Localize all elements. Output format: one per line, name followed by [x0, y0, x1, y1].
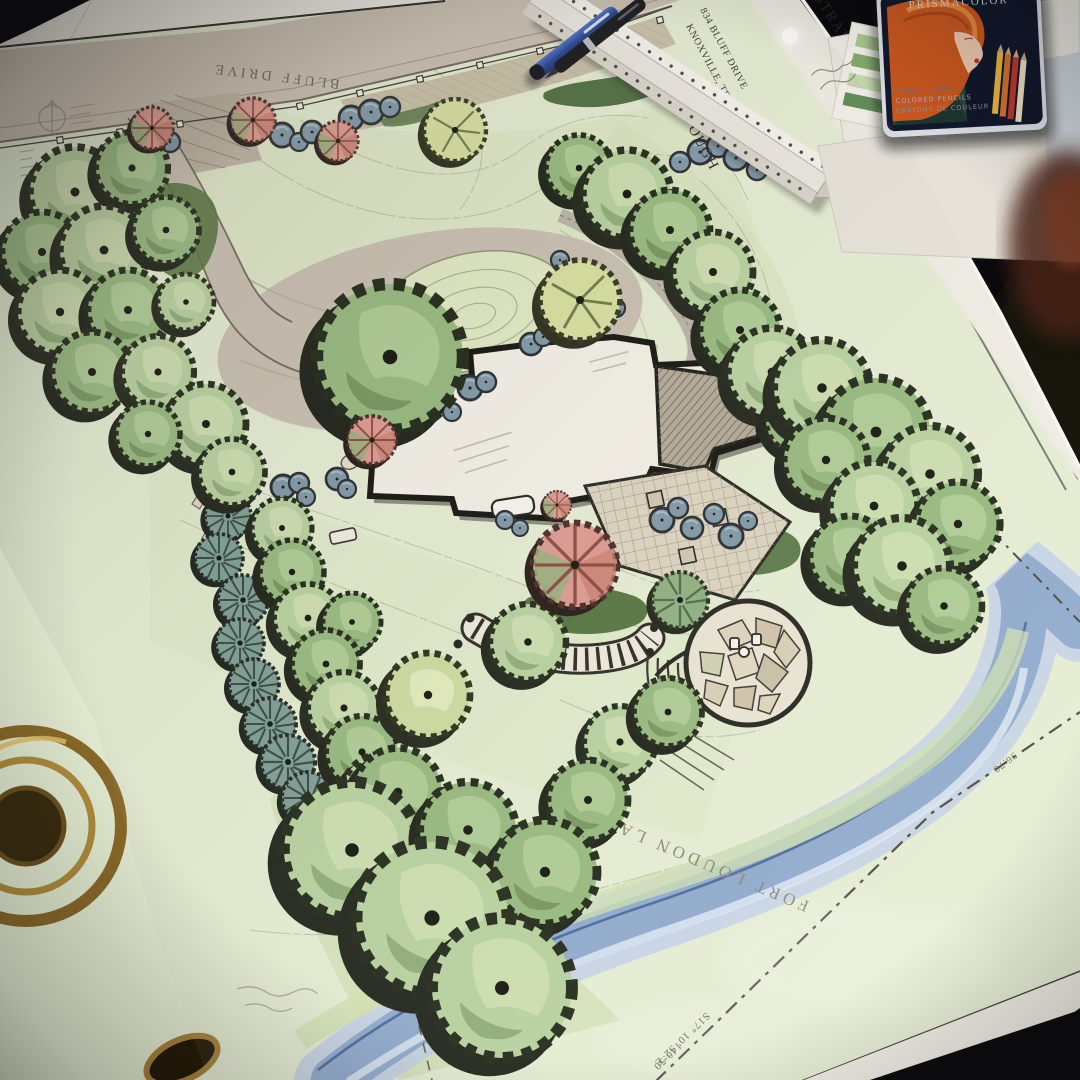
vignette: [0, 0, 1080, 1080]
scene-canvas: BLUFF DRIVE FORT LOUDON LAKE S17° 10' 52…: [0, 0, 1080, 1080]
lighting-overlays: [0, 0, 1080, 1080]
photo-of-landscape-master-plan: BLUFF DRIVE FORT LOUDON LAKE S17° 10' 52…: [0, 0, 1080, 1080]
